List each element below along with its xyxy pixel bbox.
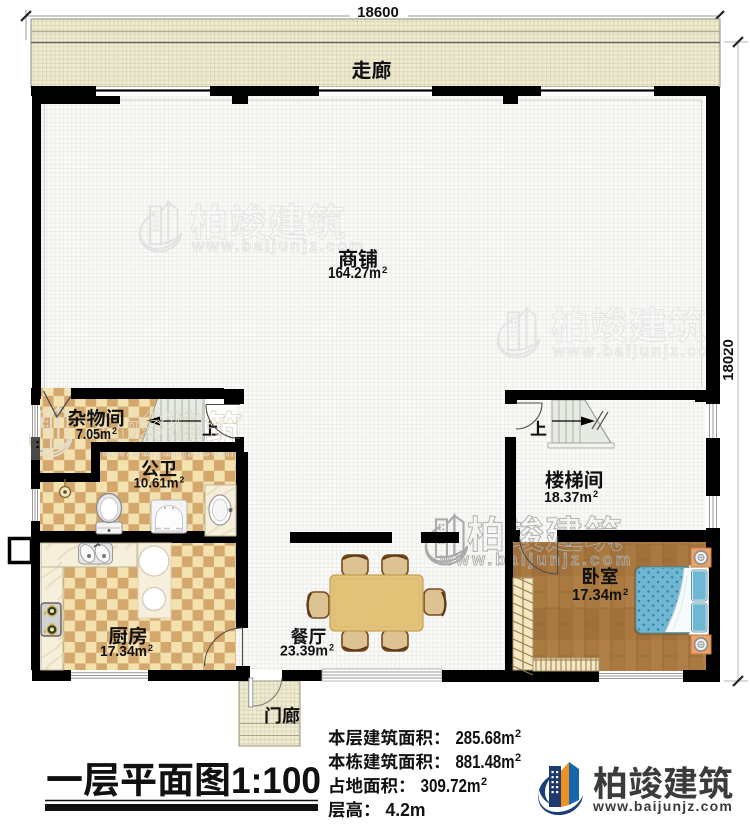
svg-text:7.05m: 7.05m	[76, 427, 111, 443]
svg-text:17.34m: 17.34m	[572, 587, 622, 604]
svg-text:www.baijunjz.com: www.baijunjz.com	[552, 343, 727, 360]
svg-text:18600: 18600	[357, 4, 399, 21]
svg-text:2: 2	[481, 776, 487, 788]
svg-text:10.61m: 10.61m	[134, 475, 179, 491]
svg-text:309.72m: 309.72m	[421, 776, 481, 796]
svg-text:www.baijunjz.com: www.baijunjz.com	[592, 798, 733, 814]
svg-text:2: 2	[515, 728, 521, 740]
svg-text:2: 2	[382, 265, 387, 276]
svg-text:2: 2	[593, 489, 598, 499]
svg-text:881.48m: 881.48m	[456, 752, 515, 772]
svg-text:17.34m: 17.34m	[100, 644, 147, 660]
svg-text:164.27m: 164.27m	[328, 265, 381, 282]
svg-text:285.68m: 285.68m	[456, 728, 515, 748]
svg-text:2: 2	[112, 426, 117, 436]
svg-text:2: 2	[180, 474, 185, 484]
svg-text:www.baijunjz.com: www.baijunjz.com	[439, 551, 634, 569]
svg-text:23.39m: 23.39m	[280, 644, 328, 660]
svg-text:1:100: 1:100	[231, 760, 321, 801]
svg-text:4.2m: 4.2m	[386, 800, 426, 820]
svg-text:2: 2	[329, 642, 334, 652]
svg-text:2: 2	[148, 643, 153, 653]
svg-text:2: 2	[623, 587, 628, 598]
svg-text:2: 2	[515, 752, 521, 764]
svg-text:18.37m: 18.37m	[544, 489, 592, 506]
